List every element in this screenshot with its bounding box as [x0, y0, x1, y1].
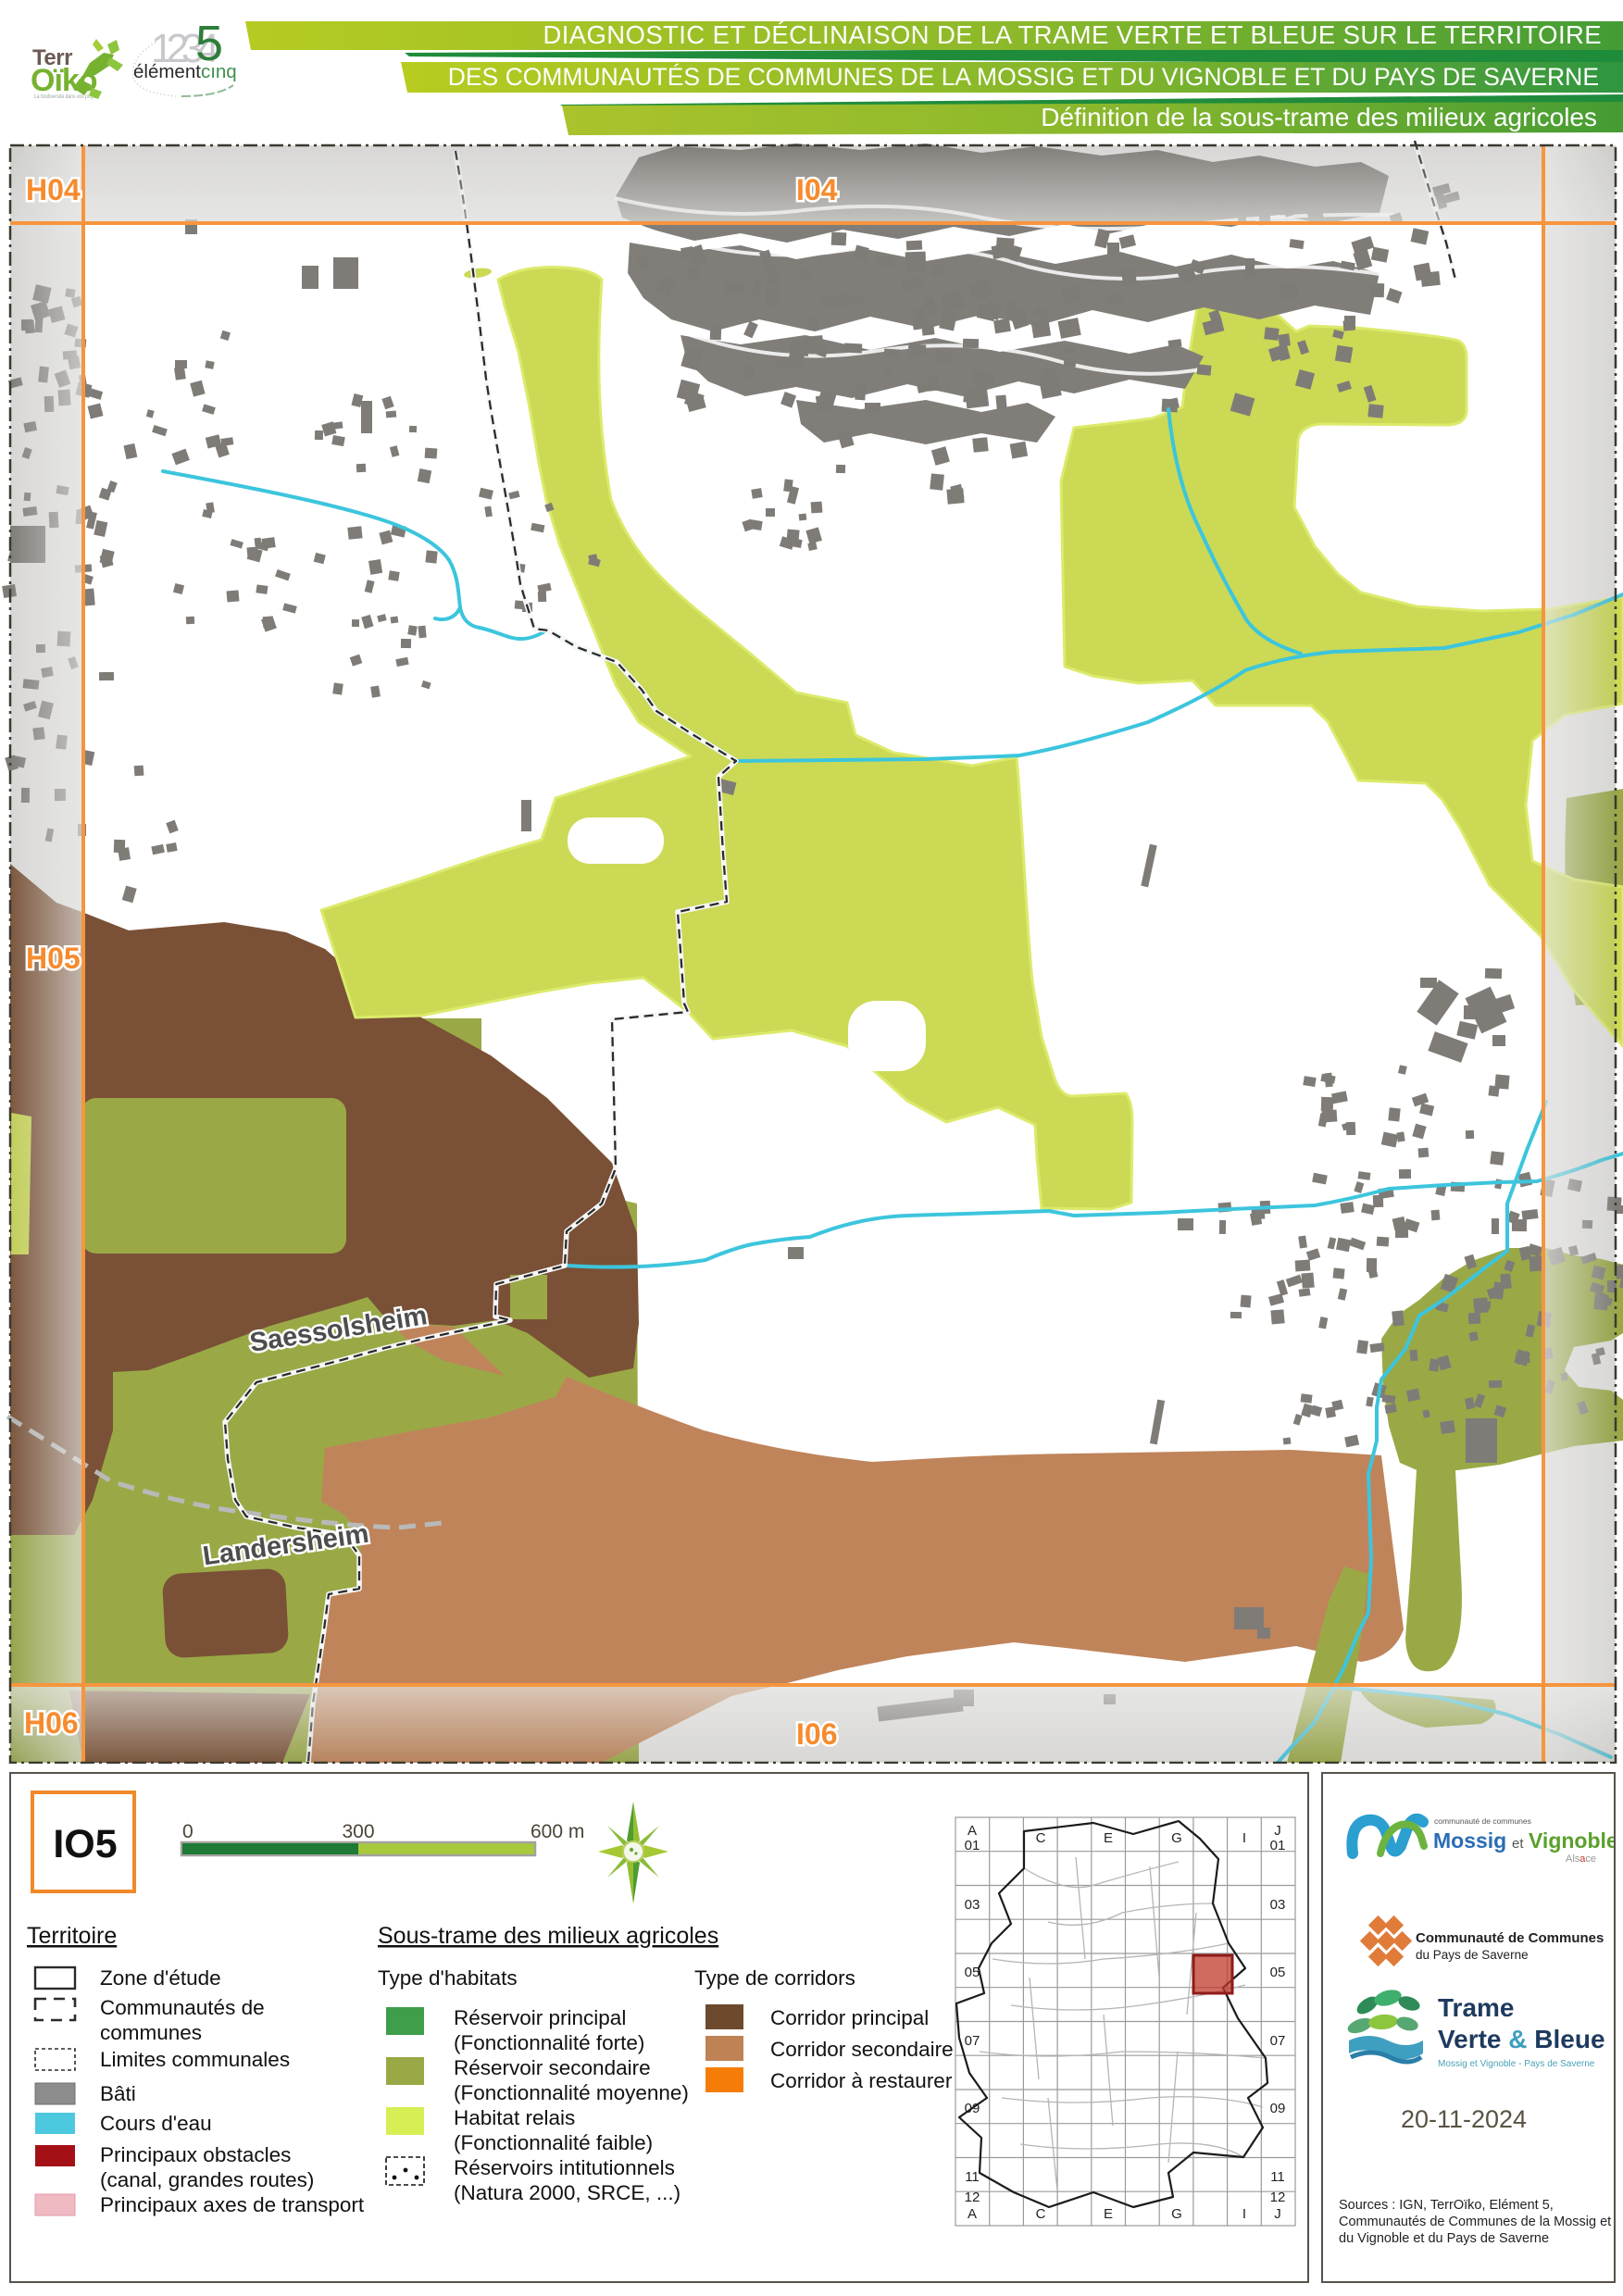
svg-text:09: 09: [965, 2101, 980, 2116]
svg-text:600 m: 600 m: [531, 1821, 584, 1842]
svg-text:Trame: Trame: [1438, 1993, 1515, 2022]
svg-text:Principaux axes de transport: Principaux axes de transport: [100, 2193, 365, 2216]
svg-text:Corridor secondaire: Corridor secondaire: [770, 2038, 954, 2061]
svg-text:300: 300: [342, 1821, 374, 1842]
svg-text:Corridor à restaurer: Corridor à restaurer: [770, 2069, 953, 2092]
svg-text:du Pays de Saverne: du Pays de Saverne: [1416, 1948, 1529, 1962]
svg-text:Sources : IGN, TerrOïko, Eléme: Sources : IGN, TerrOïko, Elément 5,: [1339, 2198, 1554, 2213]
svg-text:Mossig et Vignoble - Pays de S: Mossig et Vignoble - Pays de Saverne: [1438, 2059, 1595, 2069]
svg-text:12: 12: [1270, 2190, 1286, 2205]
svg-text:Réservoirs intitutionnels: Réservoirs intitutionnels: [454, 2156, 675, 2179]
svg-text:Limites communales: Limites communales: [100, 2048, 290, 2071]
svg-text:et: et: [1512, 1836, 1524, 1852]
svg-text:Habitat relais: Habitat relais: [454, 2106, 575, 2129]
svg-text:09: 09: [1270, 2101, 1286, 2116]
svg-text:(Natura 2000, SRCE, ...): (Natura 2000, SRCE, ...): [454, 2181, 680, 2204]
svg-text:12: 12: [965, 2190, 980, 2205]
svg-text:05: 05: [1270, 1965, 1286, 1980]
svg-text:A: A: [968, 2206, 977, 2222]
svg-text:01: 01: [965, 1838, 980, 1853]
svg-text:du Vignoble et du Pays de Save: du Vignoble et du Pays de Saverne: [1339, 2231, 1549, 2246]
svg-text:11: 11: [1270, 2169, 1285, 2185]
svg-text:I: I: [1242, 1830, 1246, 1846]
svg-text:07: 07: [1270, 2033, 1286, 2049]
svg-text:Communauté de Communes: Communauté de Communes: [1416, 1930, 1604, 1946]
svg-text:20-11-2024: 20-11-2024: [1401, 2105, 1527, 2133]
svg-text:11: 11: [965, 2169, 980, 2185]
svg-text:Corridor principal: Corridor principal: [770, 2006, 929, 2029]
svg-text:Communautés de Communes de la: Communautés de Communes de la Mossig et: [1339, 2215, 1611, 2229]
svg-text:(Fonctionnalité forte): (Fonctionnalité forte): [454, 2031, 644, 2054]
svg-text:Réservoir principal: Réservoir principal: [454, 2006, 626, 2029]
svg-text:I: I: [1242, 2206, 1246, 2222]
svg-text:C: C: [1036, 1830, 1046, 1846]
svg-text:03: 03: [1270, 1897, 1286, 1913]
svg-text:(canal, grandes routes): (canal, grandes routes): [100, 2168, 314, 2191]
svg-text:Cours d'eau: Cours d'eau: [100, 2112, 212, 2135]
svg-text:E: E: [1104, 2206, 1113, 2222]
svg-text:07: 07: [965, 2033, 980, 2049]
svg-text:communes: communes: [100, 2021, 202, 2044]
svg-text:E: E: [1104, 1830, 1113, 1846]
svg-text:communauté de communes: communauté de communes: [1434, 1816, 1531, 1826]
svg-text:H06: H06: [24, 1706, 79, 1740]
svg-text:(Fonctionnalité faible): (Fonctionnalité faible): [454, 2131, 653, 2154]
svg-text:Vignoble: Vignoble: [1529, 1828, 1614, 1853]
svg-text:Alsace: Alsace: [1566, 1853, 1596, 1865]
svg-text:DIAGNOSTIC ET DÉCLINAISON DE L: DIAGNOSTIC ET DÉCLINAISON DE LA TRAME VE…: [543, 20, 1602, 49]
svg-text:I04: I04: [796, 173, 838, 206]
svg-text:(Fonctionnalité moyenne): (Fonctionnalité moyenne): [454, 2081, 689, 2104]
svg-text:A: A: [968, 1823, 977, 1839]
svg-text:H04: H04: [26, 173, 81, 206]
svg-text:Bâti: Bâti: [100, 2082, 136, 2105]
svg-text:05: 05: [965, 1965, 980, 1980]
svg-text:03: 03: [965, 1897, 980, 1913]
svg-text:01: 01: [1270, 1838, 1286, 1853]
svg-text:G: G: [1171, 1830, 1182, 1846]
svg-text:Réservoir secondaire: Réservoir secondaire: [454, 2056, 651, 2079]
svg-text:Zone d'étude: Zone d'étude: [100, 1966, 221, 1990]
svg-text:Territoire: Territoire: [27, 1923, 117, 1949]
svg-text:Sous-trame des milieux agricol: Sous-trame des milieux agricoles: [378, 1923, 718, 1949]
svg-text:Type de corridors: Type de corridors: [694, 1966, 855, 1990]
svg-text:IO5: IO5: [53, 1822, 117, 1866]
svg-text:DES COMMUNAUTÉS DE COMMUNES DE: DES COMMUNAUTÉS DE COMMUNES DE LA MOSSIG…: [448, 63, 1599, 91]
svg-text:J: J: [1274, 1823, 1281, 1839]
svg-text:élémentcınq: élémentcınq: [133, 61, 237, 82]
svg-text:0: 0: [182, 1821, 194, 1842]
svg-text:J: J: [1274, 2206, 1281, 2222]
svg-text:Mossig: Mossig: [1433, 1828, 1506, 1853]
svg-text:Définition de la sous-trame de: Définition de la sous-trame des milieux …: [1041, 103, 1597, 131]
svg-text:Principaux obstacles: Principaux obstacles: [100, 2143, 291, 2166]
svg-text:Type d'habitats: Type d'habitats: [378, 1966, 518, 1990]
svg-text:C: C: [1036, 2206, 1046, 2222]
svg-text:Verte & Bleue: Verte & Bleue: [1438, 2025, 1605, 2053]
svg-text:Communautés de: Communautés de: [100, 1996, 265, 2019]
svg-text:G: G: [1171, 2206, 1182, 2222]
svg-text:H05: H05: [26, 942, 81, 975]
svg-text:I06: I06: [796, 1717, 837, 1751]
